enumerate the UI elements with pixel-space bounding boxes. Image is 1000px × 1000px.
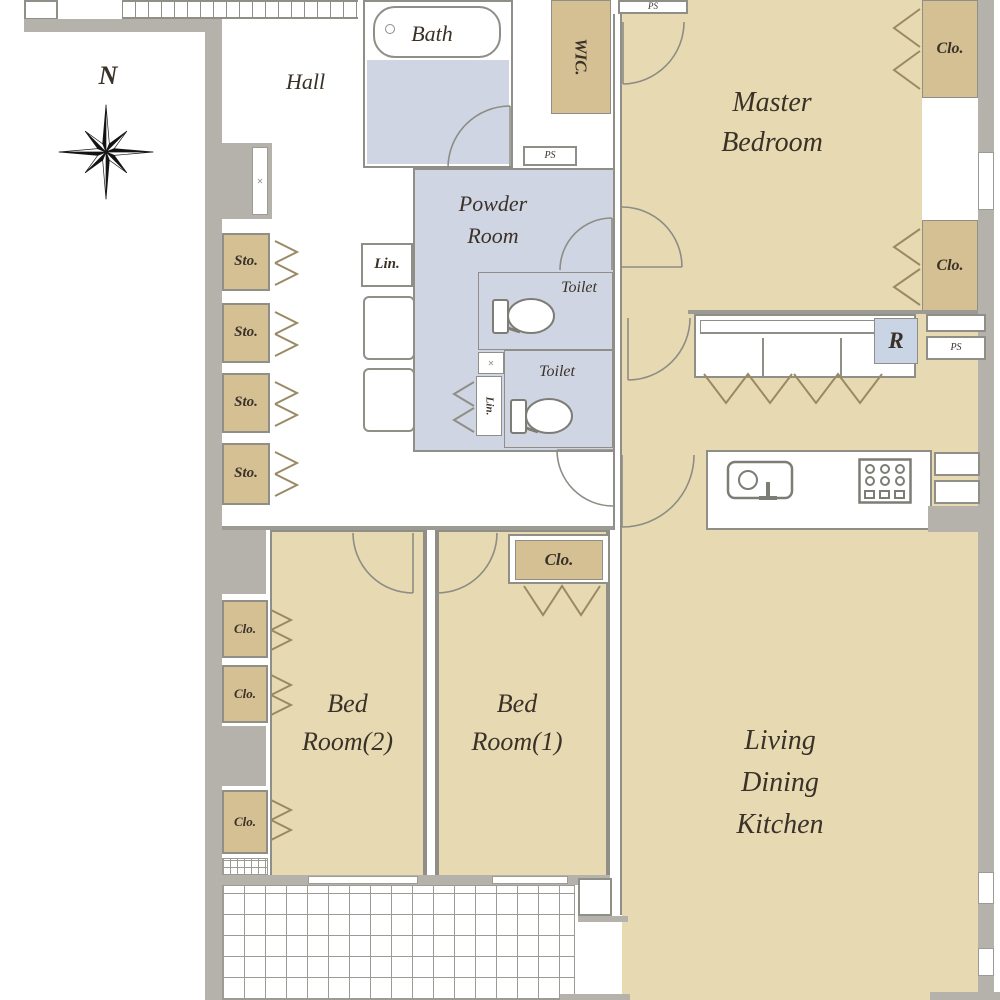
storage-box-1: Sto.: [222, 233, 270, 291]
closet-a-label: Clo.: [234, 622, 256, 636]
right-wall-window-ldk1: [978, 872, 994, 904]
bedroom1-window: [492, 876, 568, 884]
master-bedroom-label-line2: Bedroom: [622, 128, 922, 157]
ldk-label-line2: Dining: [700, 768, 860, 797]
folding-door-icon: [702, 372, 794, 406]
toilet-lower-label: Toilet: [522, 364, 592, 381]
counter-divider: [840, 338, 842, 376]
toilet-icon: [490, 294, 558, 340]
bottom-wall-stub: [930, 992, 1000, 1000]
bedroom1-label-line1: Bed: [442, 690, 592, 717]
balcony-access-window: [578, 878, 612, 916]
closet-b-label: Clo.: [234, 687, 256, 701]
toilet-ps-box: ✕: [478, 352, 504, 374]
wall-filler: [222, 726, 266, 786]
ps-nook-slot: ✕: [252, 147, 268, 215]
hall-label: Hall: [258, 70, 353, 93]
balcony-step: [578, 916, 628, 922]
powder-room-label-line2: Room: [418, 224, 568, 247]
kitchen-cabinet: [934, 452, 980, 476]
bedroom2-label-line1: Bed: [275, 690, 420, 717]
bedroom1-closet-niche: Clo.: [508, 534, 610, 584]
ps-x-marker: ✕: [257, 177, 264, 186]
vanity-fixture: [363, 368, 415, 432]
storage-box-4: Sto.: [222, 443, 270, 505]
linen-vertical-label: Lin.: [483, 397, 495, 416]
ps-nook: ✕: [222, 143, 272, 219]
folding-door-icon: [268, 608, 294, 652]
linen-cabinet: Lin.: [361, 243, 413, 287]
master-closet-bottom: Clo.: [922, 220, 978, 313]
folding-door-icon: [272, 310, 300, 358]
master-closet-bottom-label: Clo.: [936, 258, 963, 275]
folding-door-icon: [792, 372, 884, 406]
floor-plan: N Hall Bath WIC. PS PS Master Bedr: [0, 0, 1000, 1000]
counter-divider: [762, 338, 764, 376]
compass-rose-icon: [45, 93, 167, 211]
kitchen-cabinet: [934, 480, 980, 504]
neighbor-structure: [24, 0, 58, 20]
ps-top-label: PS: [620, 2, 686, 11]
master-closet-top-label: Clo.: [936, 41, 963, 58]
balcony-floor: [222, 885, 575, 1000]
bedroom2-label-line2: Room(2): [275, 728, 420, 755]
ps-right-box: PS: [926, 336, 986, 360]
left-wall: [205, 19, 222, 1000]
meter-box-hatch: [222, 858, 268, 876]
storage-3-label: Sto.: [234, 395, 258, 411]
storage-box-2: Sto.: [222, 303, 270, 363]
bedroom2-closet-b: Clo.: [222, 665, 268, 723]
powder-room-label-line1: Powder: [418, 192, 568, 215]
storage-box-3: Sto.: [222, 373, 270, 433]
folding-door-icon: [450, 380, 476, 434]
ps-mid-box: PS: [523, 146, 577, 166]
wall-filler: [222, 530, 266, 594]
ps-right-label: PS: [950, 343, 961, 354]
wic-label: WIC.: [571, 38, 591, 75]
bedroom2-closet-a: Clo.: [222, 600, 268, 658]
right-wall-window-master: [978, 152, 994, 210]
bath-floor: [367, 60, 509, 164]
ps-x-marker: ✕: [488, 359, 495, 368]
top-wall: [24, 19, 222, 32]
bedroom2-window: [308, 876, 418, 884]
folding-door-icon: [888, 226, 922, 308]
bedroom1-closet: Clo.: [515, 540, 603, 580]
bedroom1-closet-label: Clo.: [545, 551, 574, 569]
door-swing-icon: [557, 450, 613, 506]
folding-door-icon: [522, 584, 604, 618]
folding-door-icon: [272, 239, 300, 287]
right-wall-window-ldk2: [978, 948, 994, 976]
master-bedroom-label-line1: Master: [622, 88, 922, 117]
right-wall: [978, 0, 994, 1000]
folding-door-icon: [268, 798, 294, 842]
corridor-grate: [122, 0, 358, 19]
bedroom-partition-wall: [425, 530, 437, 878]
kitchen-sink-icon: [726, 460, 798, 506]
closet-c-label: Clo.: [234, 815, 256, 829]
bath-room: Bath: [363, 0, 513, 168]
compass-north-label: N: [90, 62, 126, 89]
kitchen-wall-stub: [928, 506, 984, 532]
bath-label: Bath: [377, 22, 487, 45]
linen-vertical-cabinet: Lin.: [476, 376, 502, 436]
toilet-icon: [508, 394, 576, 440]
stove-icon: [858, 458, 912, 504]
wic-closet: WIC.: [551, 0, 611, 114]
washer-fixture: [363, 296, 415, 360]
room-living-dining-kitchen: [622, 313, 978, 1000]
master-closet-top: Clo.: [922, 0, 978, 98]
ps-right-shelf: [926, 314, 986, 332]
master-window-bay: [922, 98, 978, 220]
storage-2-label: Sto.: [234, 325, 258, 341]
folding-door-icon: [272, 380, 300, 428]
ldk-label-line1: Living: [700, 726, 860, 755]
folding-door-icon: [272, 450, 300, 498]
refrigerator-label: R: [888, 329, 903, 353]
storage-1-label: Sto.: [234, 254, 258, 270]
bedroom1-label-line2: Room(1): [442, 728, 592, 755]
storage-4-label: Sto.: [234, 466, 258, 482]
ldk-bedroom-wall: [608, 530, 622, 915]
ps-mid-label: PS: [544, 151, 555, 162]
bottom-wall-stub: [560, 994, 630, 1000]
bedroom2-closet-c: Clo.: [222, 790, 268, 854]
hall-bedroom-wall: [222, 526, 613, 530]
ldk-label-line3: Kitchen: [700, 810, 860, 839]
folding-door-icon: [888, 6, 922, 92]
refrigerator-box: R: [874, 318, 918, 364]
ps-top-box: PS: [618, 0, 688, 14]
linen-cabinet-label: Lin.: [374, 257, 399, 273]
